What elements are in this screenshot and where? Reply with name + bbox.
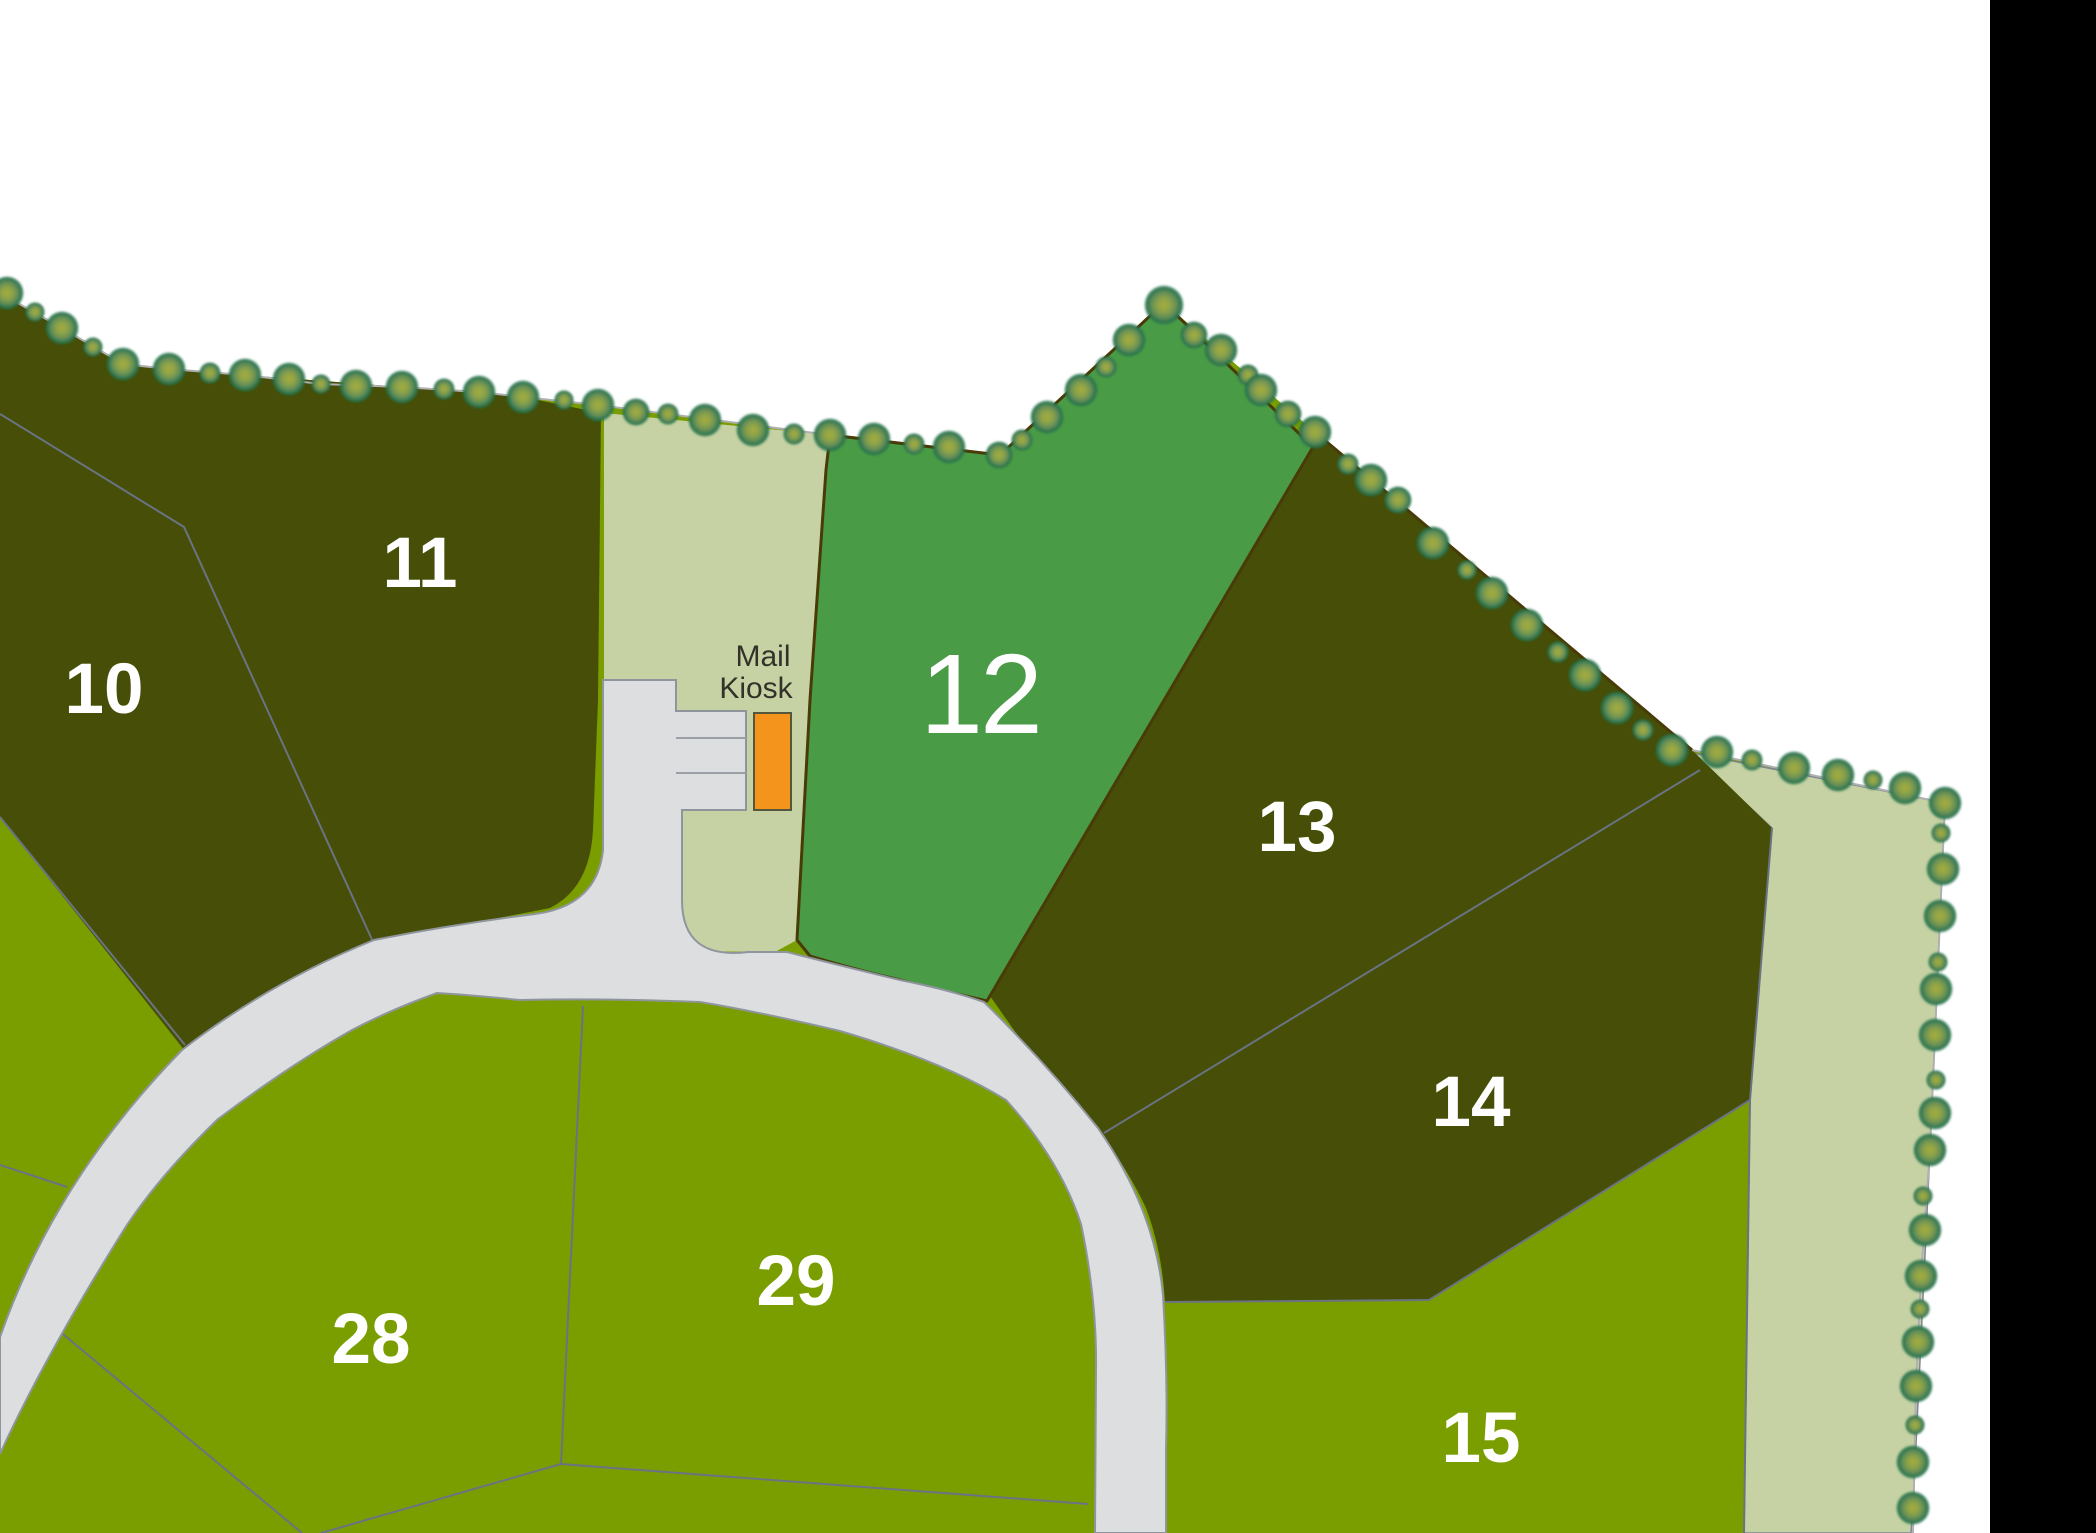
svg-text:11: 11	[382, 524, 457, 603]
svg-text:Mail: Mail	[735, 640, 790, 673]
svg-text:Kiosk: Kiosk	[719, 672, 793, 705]
svg-text:14: 14	[1432, 1063, 1511, 1142]
svg-text:29: 29	[757, 1242, 836, 1321]
svg-text:10: 10	[65, 650, 144, 729]
svg-text:15: 15	[1442, 1399, 1521, 1478]
svg-text:12: 12	[920, 631, 1040, 757]
svg-text:28: 28	[332, 1300, 411, 1379]
svg-text:13: 13	[1258, 788, 1337, 867]
